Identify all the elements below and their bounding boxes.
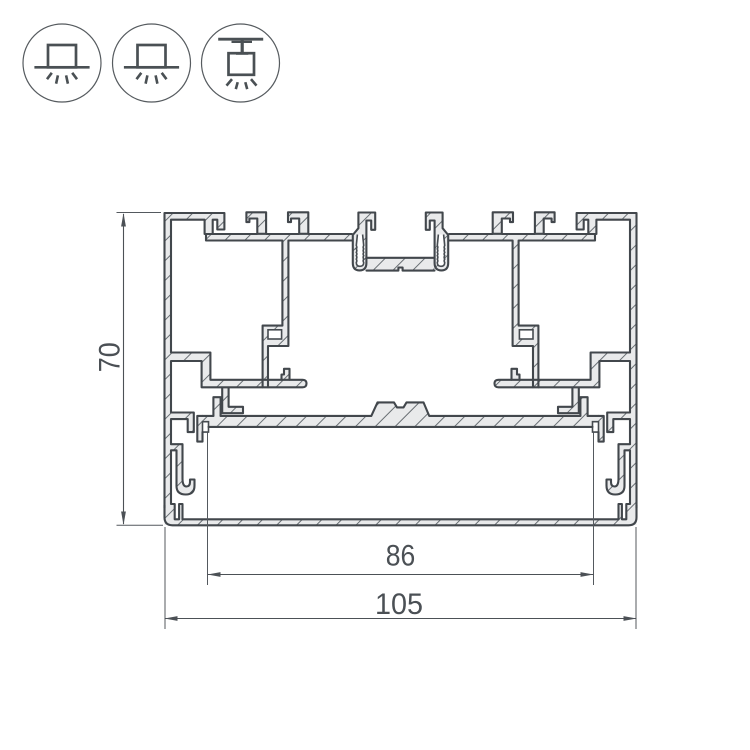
svg-text:70: 70 bbox=[94, 342, 127, 372]
svg-text:86: 86 bbox=[386, 540, 416, 573]
svg-text:105: 105 bbox=[375, 588, 423, 621]
